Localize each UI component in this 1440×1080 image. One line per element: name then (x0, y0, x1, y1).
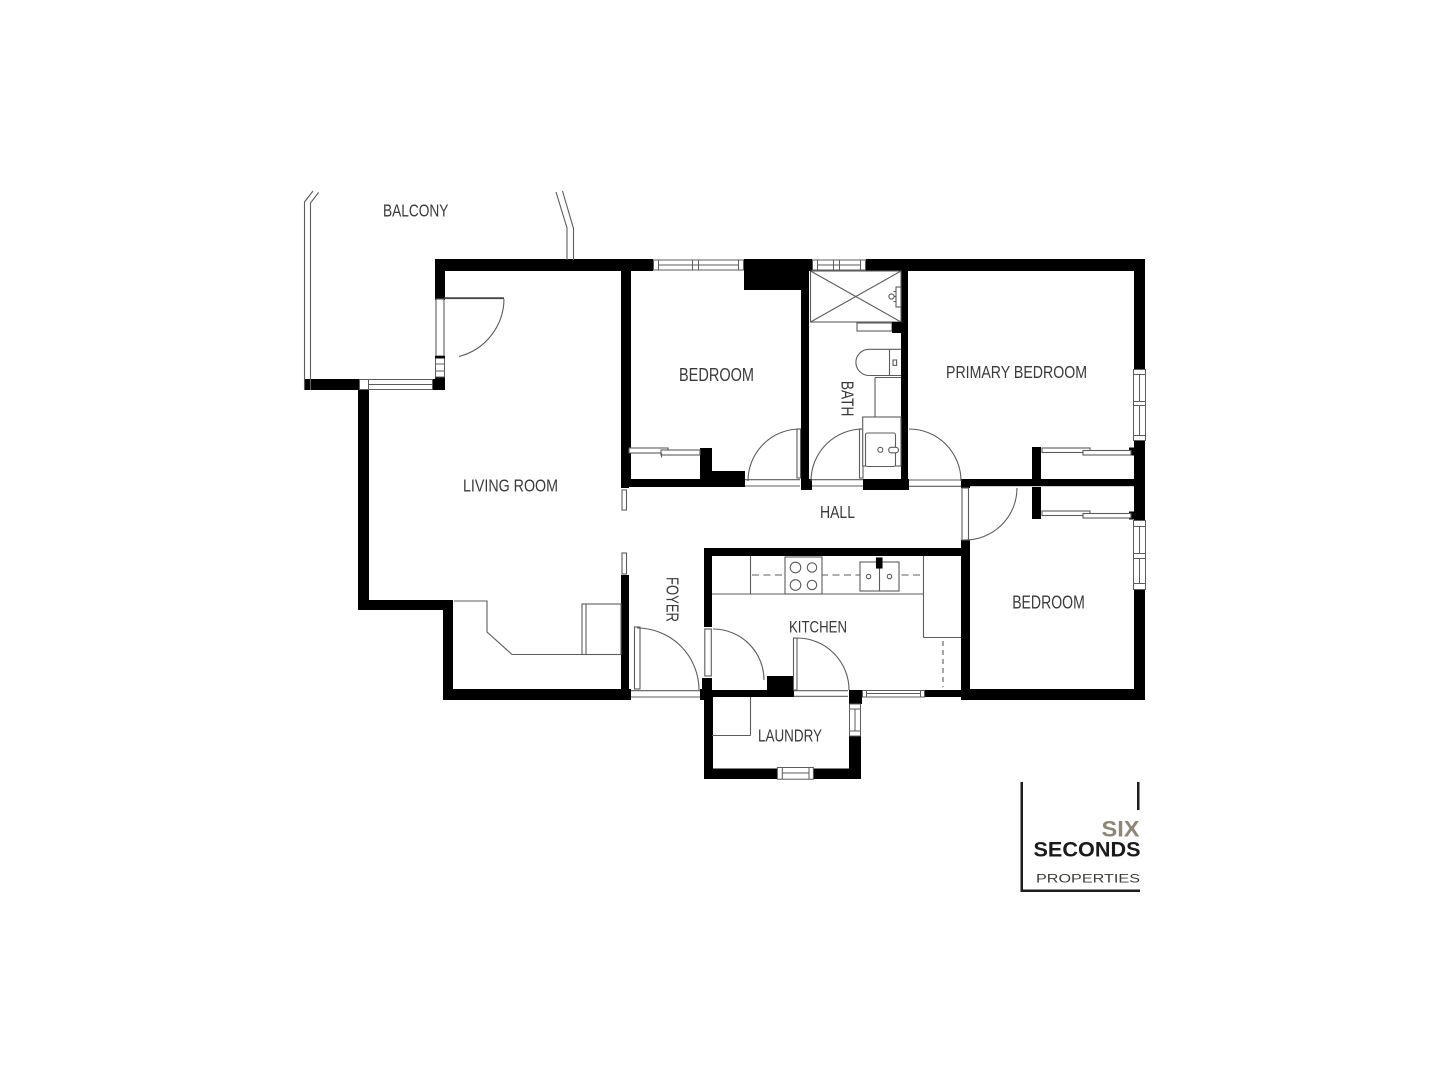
svg-text:FOYER: FOYER (663, 577, 683, 622)
svg-text:BEDROOM: BEDROOM (679, 365, 754, 385)
svg-text:BATH: BATH (838, 381, 858, 417)
svg-text:BALCONY: BALCONY (383, 200, 449, 220)
svg-text:LAUNDRY: LAUNDRY (758, 725, 822, 745)
svg-text:KITCHEN: KITCHEN (789, 619, 847, 637)
svg-text:SECONDS: SECONDS (1034, 838, 1141, 862)
svg-text:PROPERTIES: PROPERTIES (1036, 874, 1140, 886)
svg-text:HALL: HALL (820, 502, 855, 522)
svg-text:LIVING ROOM: LIVING ROOM (463, 475, 558, 495)
svg-text:BEDROOM: BEDROOM (1012, 593, 1085, 613)
svg-text:PRIMARY BEDROOM: PRIMARY BEDROOM (946, 362, 1087, 382)
